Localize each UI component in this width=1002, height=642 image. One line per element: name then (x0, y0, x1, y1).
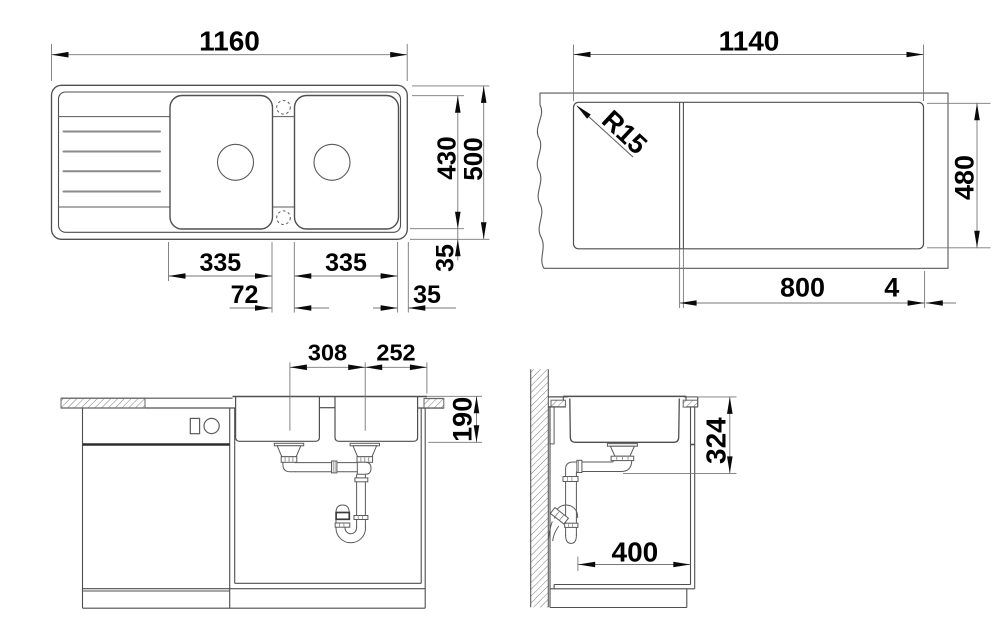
svg-text:335: 335 (199, 249, 241, 277)
svg-text:480: 480 (950, 155, 980, 200)
svg-text:1160: 1160 (199, 26, 260, 57)
svg-text:308: 308 (308, 340, 347, 366)
svg-text:335: 335 (325, 249, 367, 277)
svg-text:35: 35 (413, 281, 441, 309)
svg-text:400: 400 (612, 537, 659, 568)
svg-text:500: 500 (458, 137, 488, 180)
svg-text:35: 35 (432, 244, 460, 272)
svg-text:1140: 1140 (719, 26, 780, 57)
svg-text:252: 252 (376, 340, 415, 366)
svg-text:4: 4 (884, 273, 899, 303)
svg-text:72: 72 (231, 281, 259, 309)
svg-text:324: 324 (701, 417, 732, 464)
svg-text:190: 190 (448, 397, 478, 442)
svg-text:800: 800 (780, 273, 825, 303)
